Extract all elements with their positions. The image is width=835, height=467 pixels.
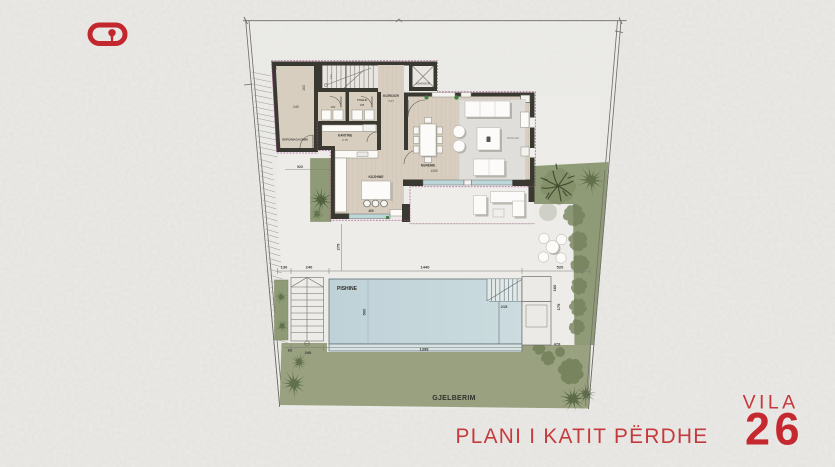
svg-text:183: 183 bbox=[331, 105, 336, 109]
svg-text:KORIDOR: KORIDOR bbox=[383, 94, 400, 98]
svg-text:NDENJE: NDENJE bbox=[507, 136, 519, 140]
svg-text:1300: 1300 bbox=[430, 169, 437, 173]
svg-text:16x: 16x bbox=[329, 74, 333, 79]
svg-text:KANTINE: KANTINE bbox=[338, 134, 352, 138]
svg-text:130: 130 bbox=[281, 265, 288, 270]
svg-text:500: 500 bbox=[362, 308, 367, 315]
svg-text:185: 185 bbox=[360, 103, 365, 107]
svg-text:240: 240 bbox=[305, 350, 312, 355]
svg-text:62: 62 bbox=[288, 348, 293, 353]
svg-text:215: 215 bbox=[501, 304, 508, 309]
svg-text:160: 160 bbox=[552, 284, 557, 291]
svg-text:ASHENSOR: ASHENSOR bbox=[416, 82, 431, 86]
svg-text:923: 923 bbox=[297, 165, 303, 169]
svg-text:240: 240 bbox=[306, 265, 313, 270]
svg-text:520: 520 bbox=[557, 265, 564, 270]
svg-text:478: 478 bbox=[554, 342, 561, 347]
svg-text:2.75: 2.75 bbox=[342, 138, 348, 142]
svg-text:1398: 1398 bbox=[420, 347, 430, 352]
svg-text:DEPO/MAGAZINIM: DEPO/MAGAZINIM bbox=[282, 138, 308, 142]
svg-text:175: 175 bbox=[556, 303, 561, 310]
svg-text:KUZHINE: KUZHINE bbox=[368, 175, 384, 179]
svg-text:NGRENIE: NGRENIE bbox=[421, 164, 436, 168]
svg-text:26: 26 bbox=[745, 404, 804, 455]
svg-text:163: 163 bbox=[302, 85, 306, 91]
svg-text:GJELBERIM: GJELBERIM bbox=[432, 395, 476, 402]
svg-text:240: 240 bbox=[293, 105, 299, 109]
svg-text:3.67: 3.67 bbox=[388, 99, 394, 103]
svg-text:1440: 1440 bbox=[421, 265, 431, 270]
svg-text:TUALE: TUALE bbox=[357, 98, 367, 102]
svg-text:PISHINE: PISHINE bbox=[337, 286, 358, 292]
svg-text:275: 275 bbox=[336, 243, 341, 250]
svg-text:PLANI I KATIT PËRDHE: PLANI I KATIT PËRDHE bbox=[456, 425, 709, 448]
svg-text:400: 400 bbox=[368, 209, 374, 213]
